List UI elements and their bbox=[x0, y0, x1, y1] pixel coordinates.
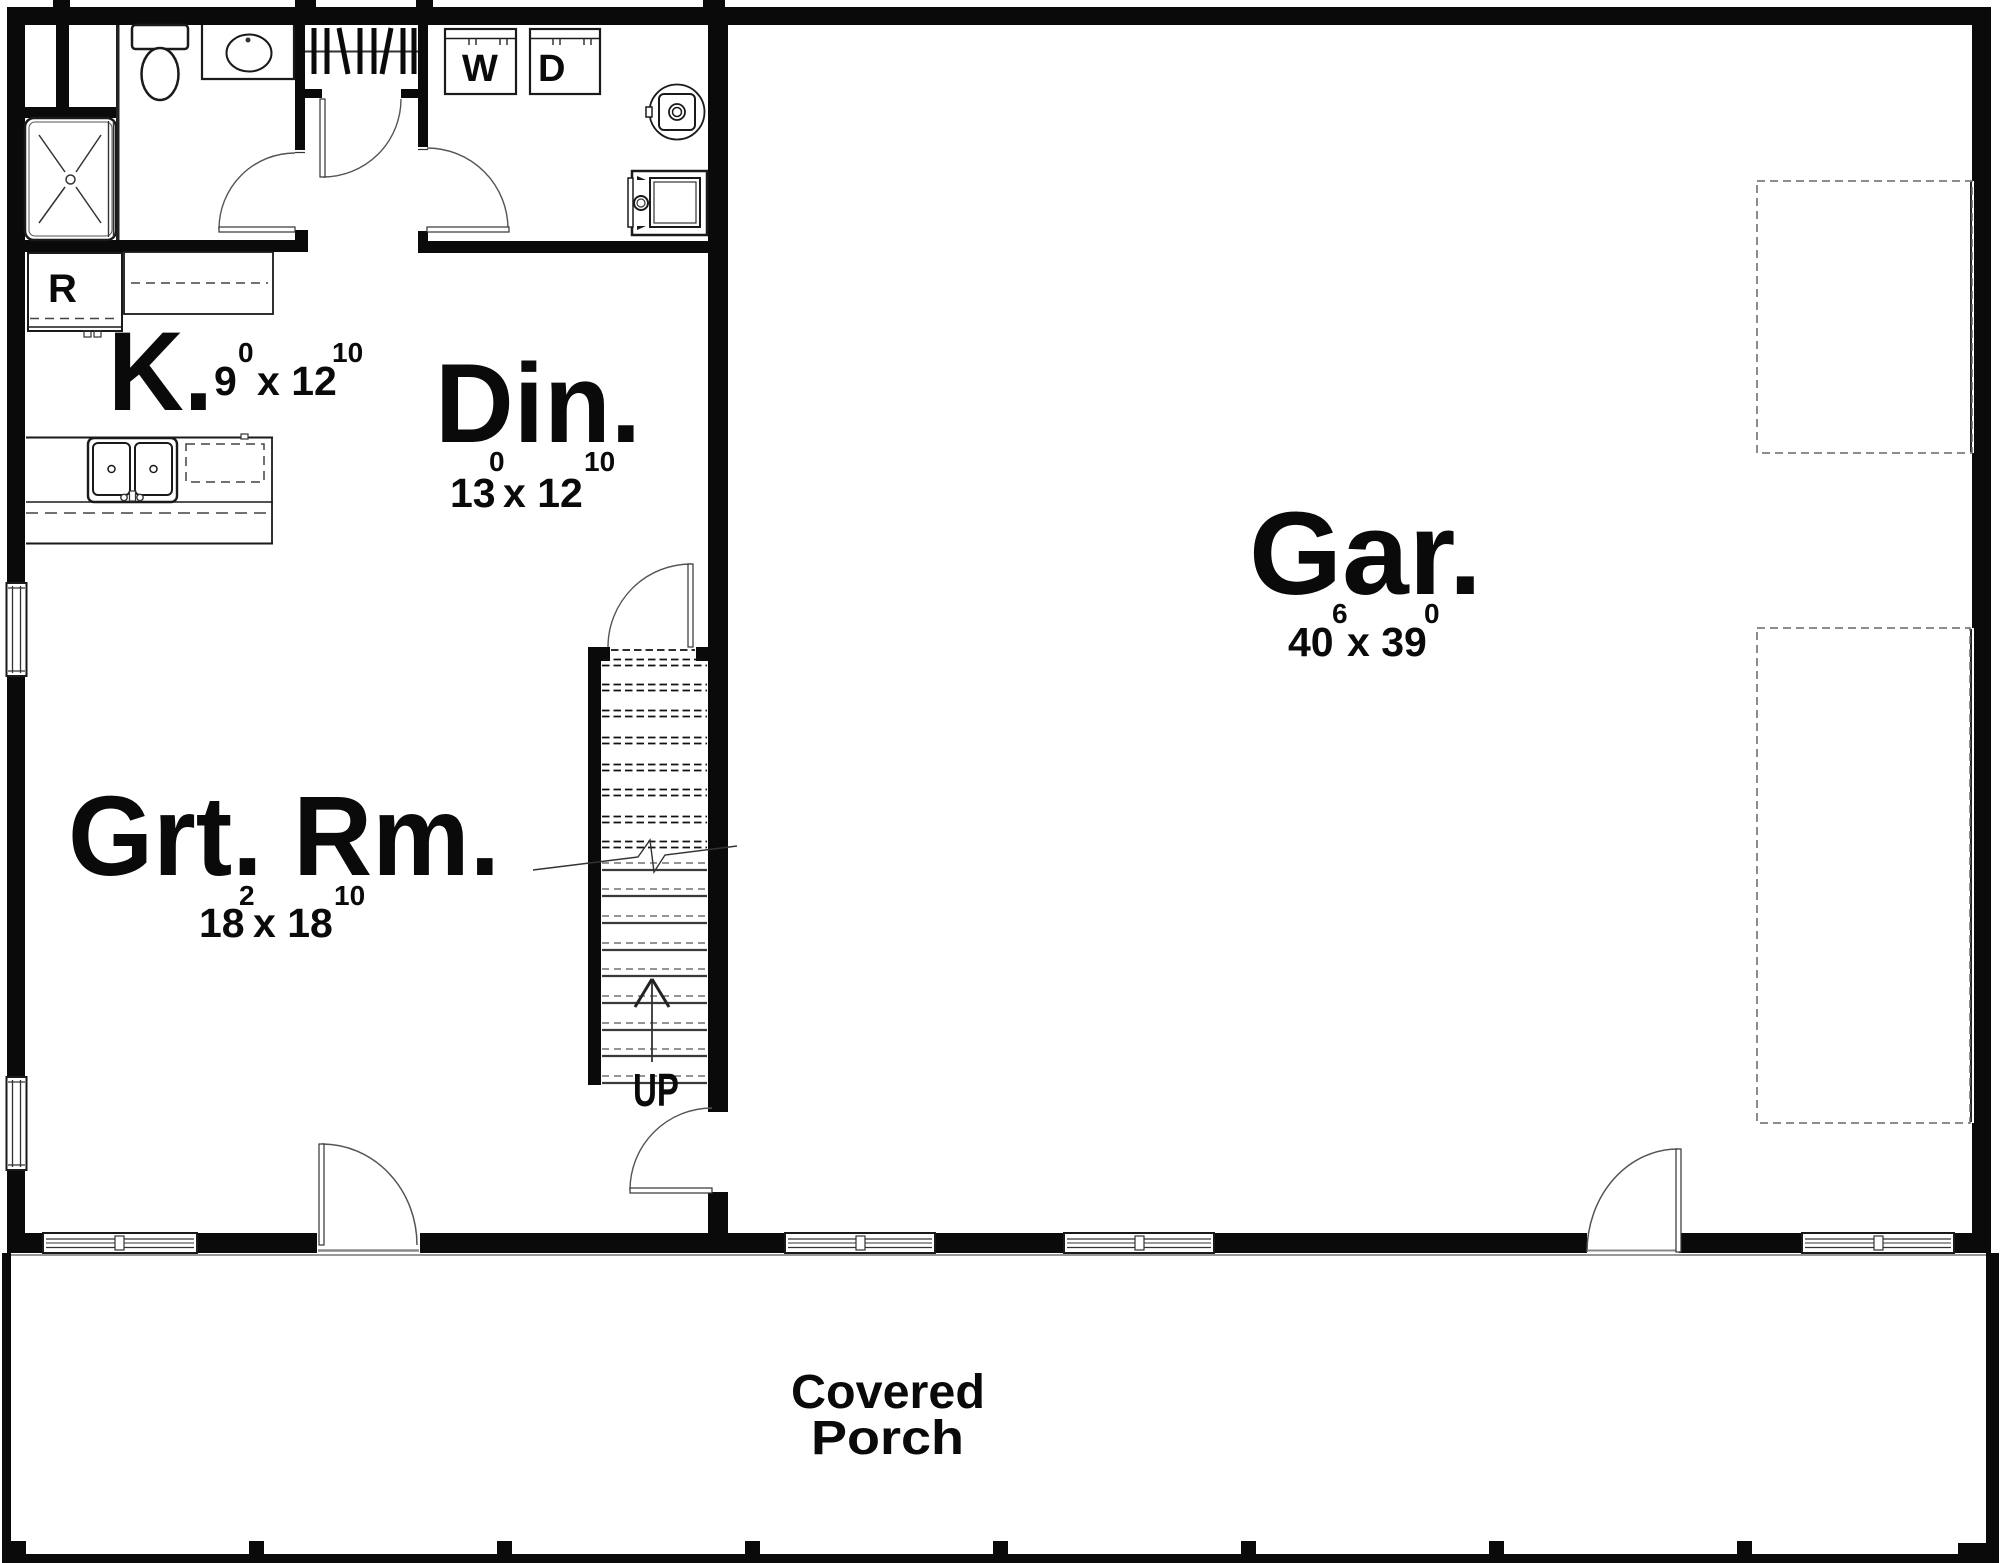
svg-text:18: 18 bbox=[199, 900, 245, 946]
svg-text:x 12: x 12 bbox=[503, 470, 583, 516]
svg-text:40: 40 bbox=[1288, 619, 1334, 665]
svg-text:x 39: x 39 bbox=[1347, 619, 1427, 665]
svg-text:6: 6 bbox=[1332, 598, 1348, 629]
svg-text:x 18: x 18 bbox=[253, 900, 333, 946]
svg-text:K.: K. bbox=[108, 309, 213, 434]
svg-text:9: 9 bbox=[214, 358, 237, 404]
svg-text:D: D bbox=[538, 48, 565, 90]
svg-text:UP: UP bbox=[633, 1064, 679, 1116]
svg-text:0: 0 bbox=[238, 337, 254, 368]
svg-text:Grt. Rm.: Grt. Rm. bbox=[68, 773, 500, 899]
svg-text:x 12: x 12 bbox=[257, 358, 337, 404]
svg-text:Gar.: Gar. bbox=[1249, 488, 1482, 620]
svg-text:0: 0 bbox=[1424, 598, 1440, 629]
svg-text:10: 10 bbox=[584, 446, 615, 477]
svg-text:10: 10 bbox=[334, 880, 365, 911]
svg-text:R: R bbox=[48, 267, 77, 311]
svg-text:W: W bbox=[462, 48, 498, 90]
svg-text:Porch: Porch bbox=[811, 1412, 964, 1465]
svg-text:10: 10 bbox=[332, 337, 363, 368]
